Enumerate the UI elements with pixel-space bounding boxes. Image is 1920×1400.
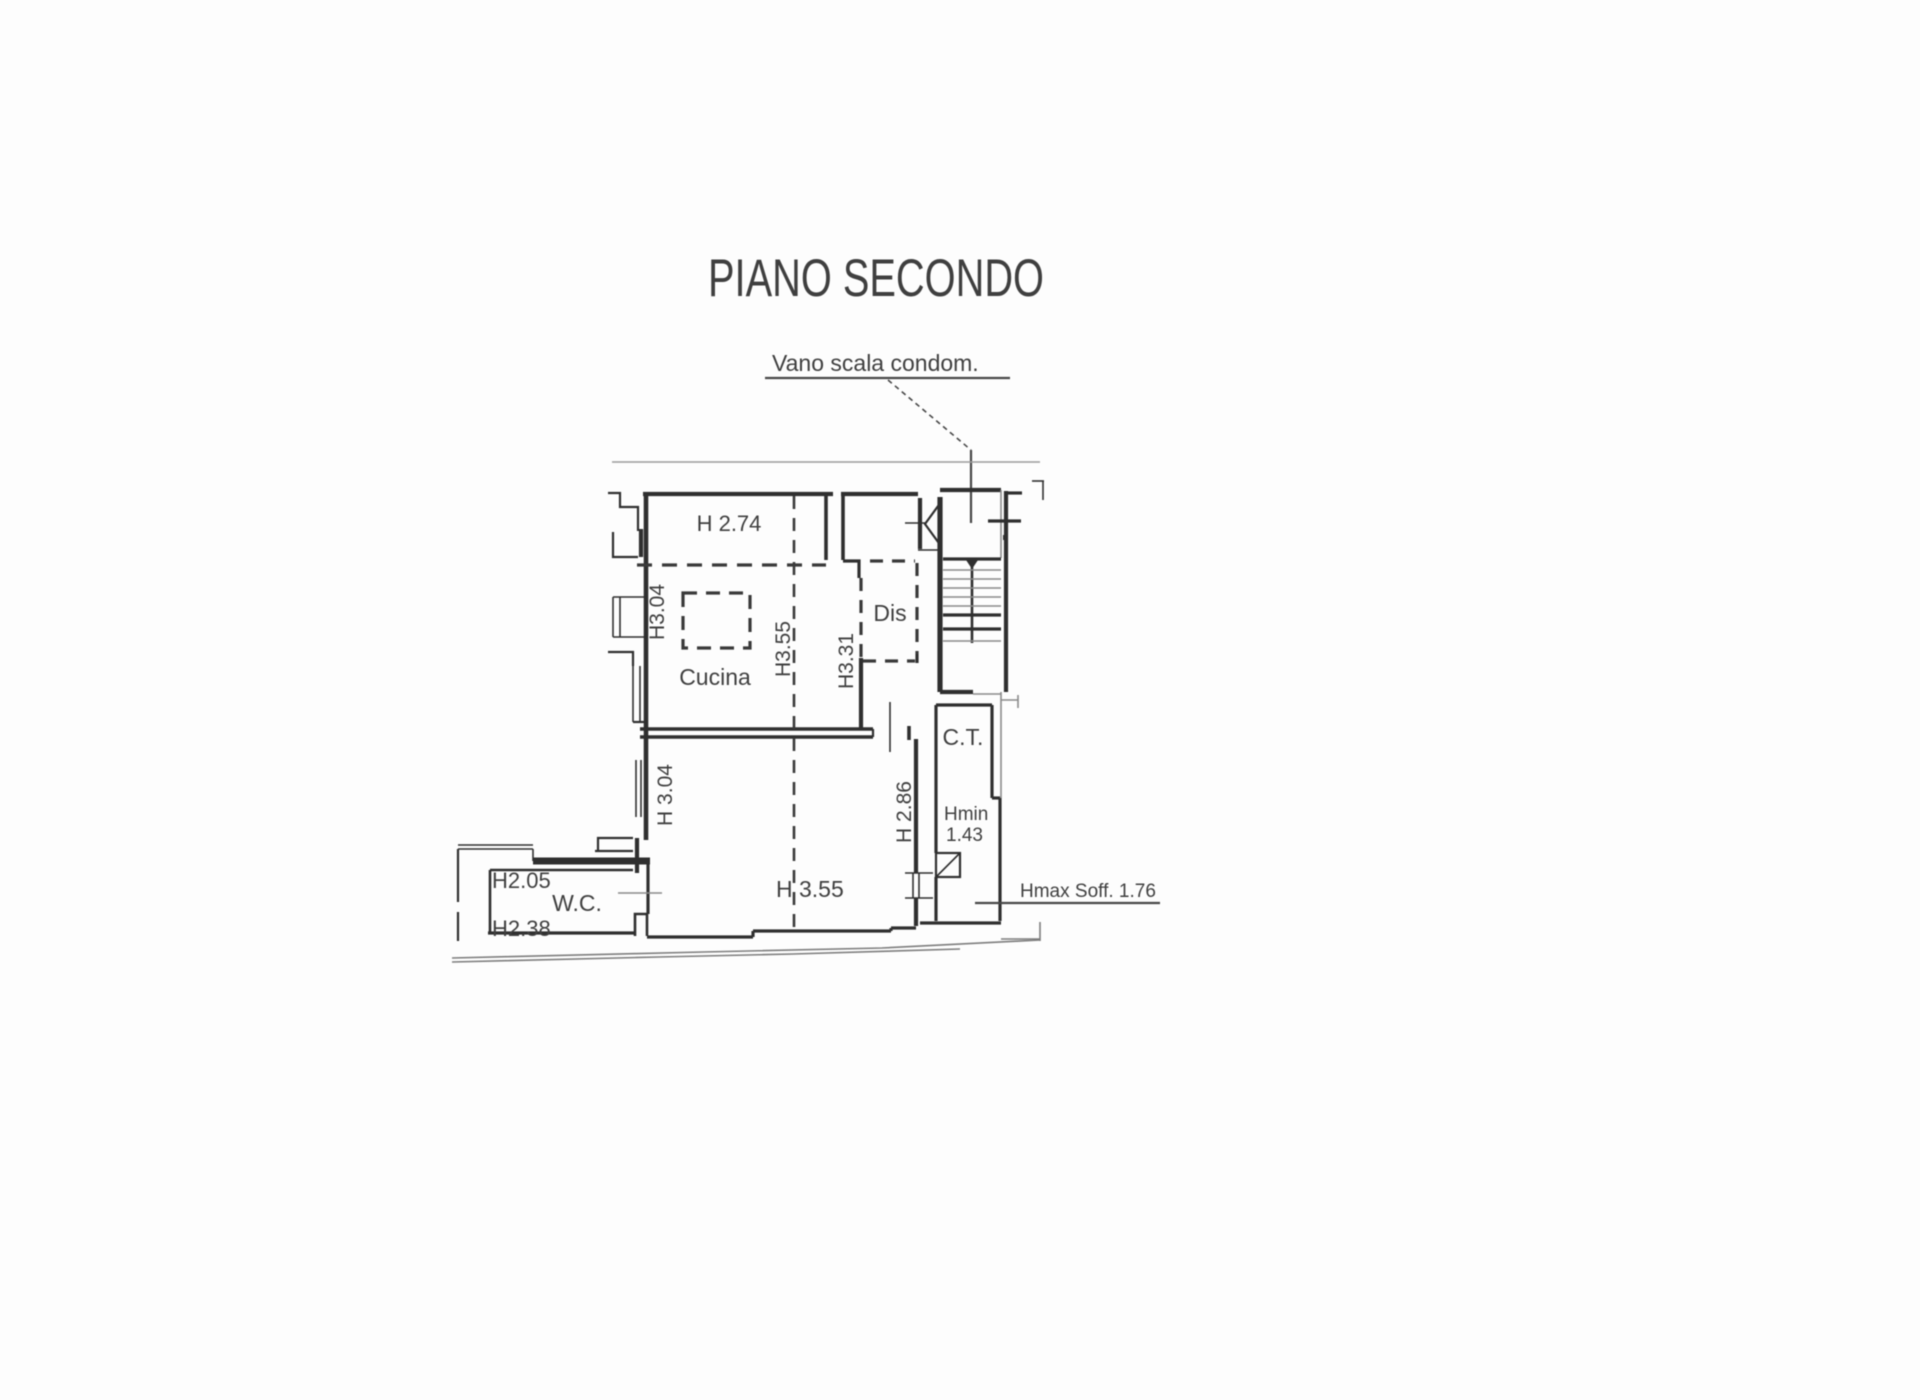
- height-value-hmin: 1.43: [946, 825, 983, 846]
- height-label-top-room: H 2.74: [697, 511, 762, 536]
- height-label-living-bottom: H 3.55: [776, 876, 844, 902]
- dashed-height-lines: [637, 496, 917, 928]
- height-label-hall: H3.31: [835, 633, 858, 689]
- room-label-ct: C.T.: [943, 724, 984, 750]
- room-label-wc: W.C.: [552, 890, 602, 916]
- height-label-kitchen-left: H3.04: [646, 584, 669, 640]
- stair-direction-arrow: [966, 560, 978, 569]
- staircase: [943, 559, 1001, 643]
- height-label-living-left: H 3.04: [654, 764, 677, 826]
- floor-title: PIANO SECONDO: [708, 249, 1044, 308]
- stairwell-callout-label: Vano scala condom.: [772, 350, 979, 376]
- floorplan-drawing: PIANO SECONDO Vano scala condom.: [0, 0, 1920, 1400]
- hatch-symbol: [936, 853, 960, 877]
- height-label-wc-bottom: H2.38: [492, 916, 551, 941]
- height-label-ceiling-max: Hmax Soff. 1.76: [1020, 881, 1156, 902]
- floorplan-page: PIANO SECONDO Vano scala condom.: [0, 0, 1920, 1400]
- height-label-wc-top: H2.05: [492, 868, 551, 893]
- height-label-living-right: H 2.86: [893, 781, 916, 843]
- height-label-center: H3.55: [772, 621, 795, 677]
- wall-node-mark: [1003, 535, 1008, 540]
- room-label-cucina: Cucina: [679, 664, 751, 690]
- door-symbols: [890, 502, 941, 752]
- room-label-dis: Dis: [873, 600, 906, 626]
- stairwell-callout-leader: [765, 378, 1010, 523]
- height-label-hmin: Hmin: [944, 804, 988, 825]
